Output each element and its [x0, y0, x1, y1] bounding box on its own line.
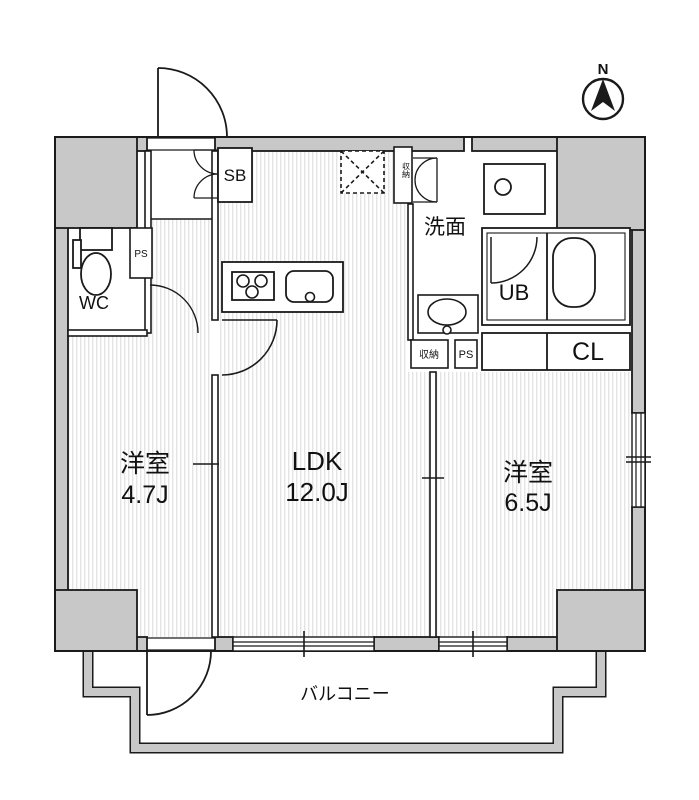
bedroom-left-name: 洋室 [120, 450, 170, 478]
storage-box-label: 収納 [419, 348, 439, 361]
closet [482, 333, 630, 370]
vanity-sink-icon [418, 295, 478, 334]
living-name: LDK [292, 446, 343, 476]
floor-hatching [68, 151, 632, 637]
shoe-box-label: SB [224, 166, 247, 185]
toilet-label: WC [79, 293, 109, 313]
entrance-door [158, 68, 227, 137]
floor-plan-svg: N 洋室 4.7J LDK 12.0J 洋室 6.5J 洗面 UB CL WC … [0, 0, 699, 800]
living-size: 12.0J [285, 477, 349, 507]
compass-north-label: N [598, 61, 609, 78]
pipe-space-corner-label: PS [459, 349, 474, 361]
closet-label: CL [572, 338, 604, 366]
unit-bath-label: UB [499, 280, 530, 305]
bedroom-left-size: 4.7J [121, 481, 168, 509]
bedroom-right-name: 洋室 [503, 459, 553, 487]
floor-plan: N 洋室 4.7J LDK 12.0J 洋室 6.5J 洗面 UB CL WC … [0, 0, 699, 800]
washing-machine-icon [484, 164, 545, 214]
washroom-label: 洗面 [424, 216, 466, 239]
unit-bath [482, 228, 630, 325]
bedroom-right-size: 6.5J [504, 489, 551, 517]
balcony-label: バルコニー [300, 684, 390, 704]
refrigerator-icon [341, 151, 384, 193]
balcony-door [147, 651, 211, 715]
pipe-space-entry-label: PS [134, 249, 148, 260]
washroom-doors [413, 158, 437, 202]
storage-cabinet-label: 収納 [402, 161, 411, 179]
compass-icon: N [583, 61, 623, 119]
toilet-icon [73, 228, 112, 295]
